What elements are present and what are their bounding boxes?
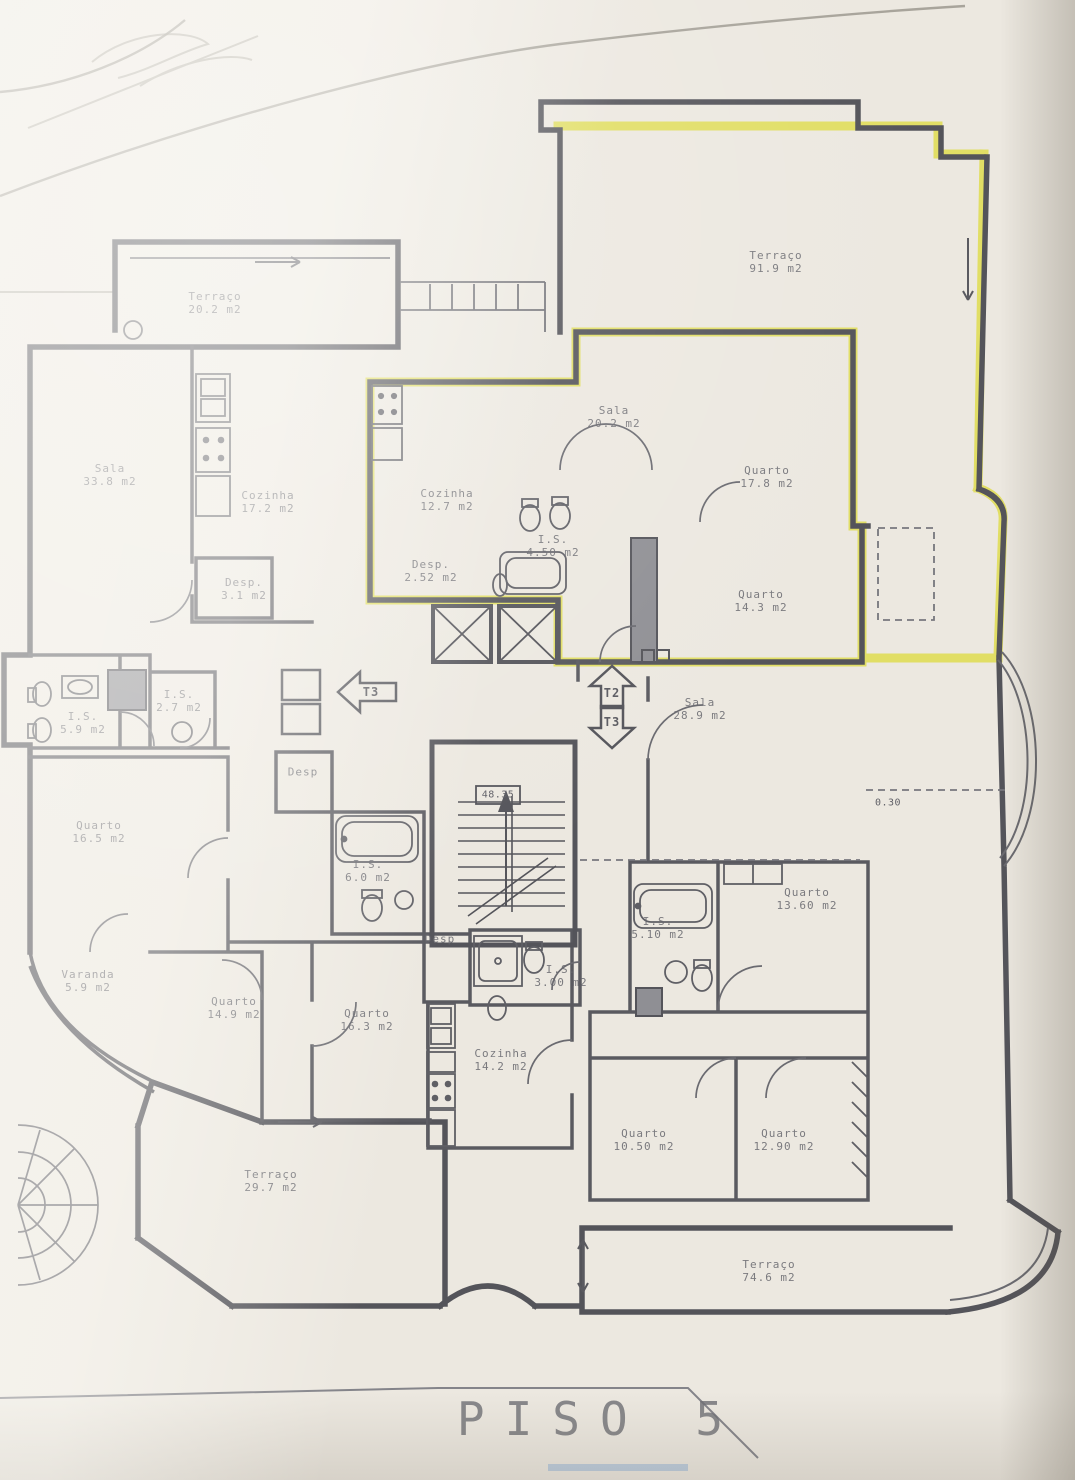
t2-up-arrow bbox=[590, 666, 634, 708]
door-arcs bbox=[90, 424, 806, 1098]
highlight-outline bbox=[370, 126, 1003, 662]
terrace-arrows bbox=[255, 238, 973, 1292]
stairwell bbox=[432, 742, 575, 945]
balcony-steps bbox=[124, 258, 545, 339]
pencil-scribble bbox=[0, 34, 258, 292]
floorplan-linework bbox=[0, 0, 1075, 1480]
curved-wall bbox=[30, 952, 154, 1092]
spiral-stair bbox=[18, 1125, 98, 1285]
stair-level-marker: 48.35 bbox=[482, 790, 515, 801]
t3-left-arrow bbox=[338, 672, 396, 712]
unit-marker-arrows bbox=[338, 666, 634, 748]
t3-down-arrow bbox=[590, 706, 634, 748]
blue-edge-mark bbox=[548, 1464, 688, 1471]
dimension-label: 0.30 bbox=[875, 798, 901, 809]
floorplan-photo: Terraço20.2 m2Terraço91.9 m2Sala33.8 m2C… bbox=[0, 0, 1075, 1480]
elevator-shafts bbox=[282, 606, 669, 734]
outer-walls bbox=[4, 102, 1058, 1312]
floor-title: PISO 5 bbox=[455, 1392, 745, 1446]
